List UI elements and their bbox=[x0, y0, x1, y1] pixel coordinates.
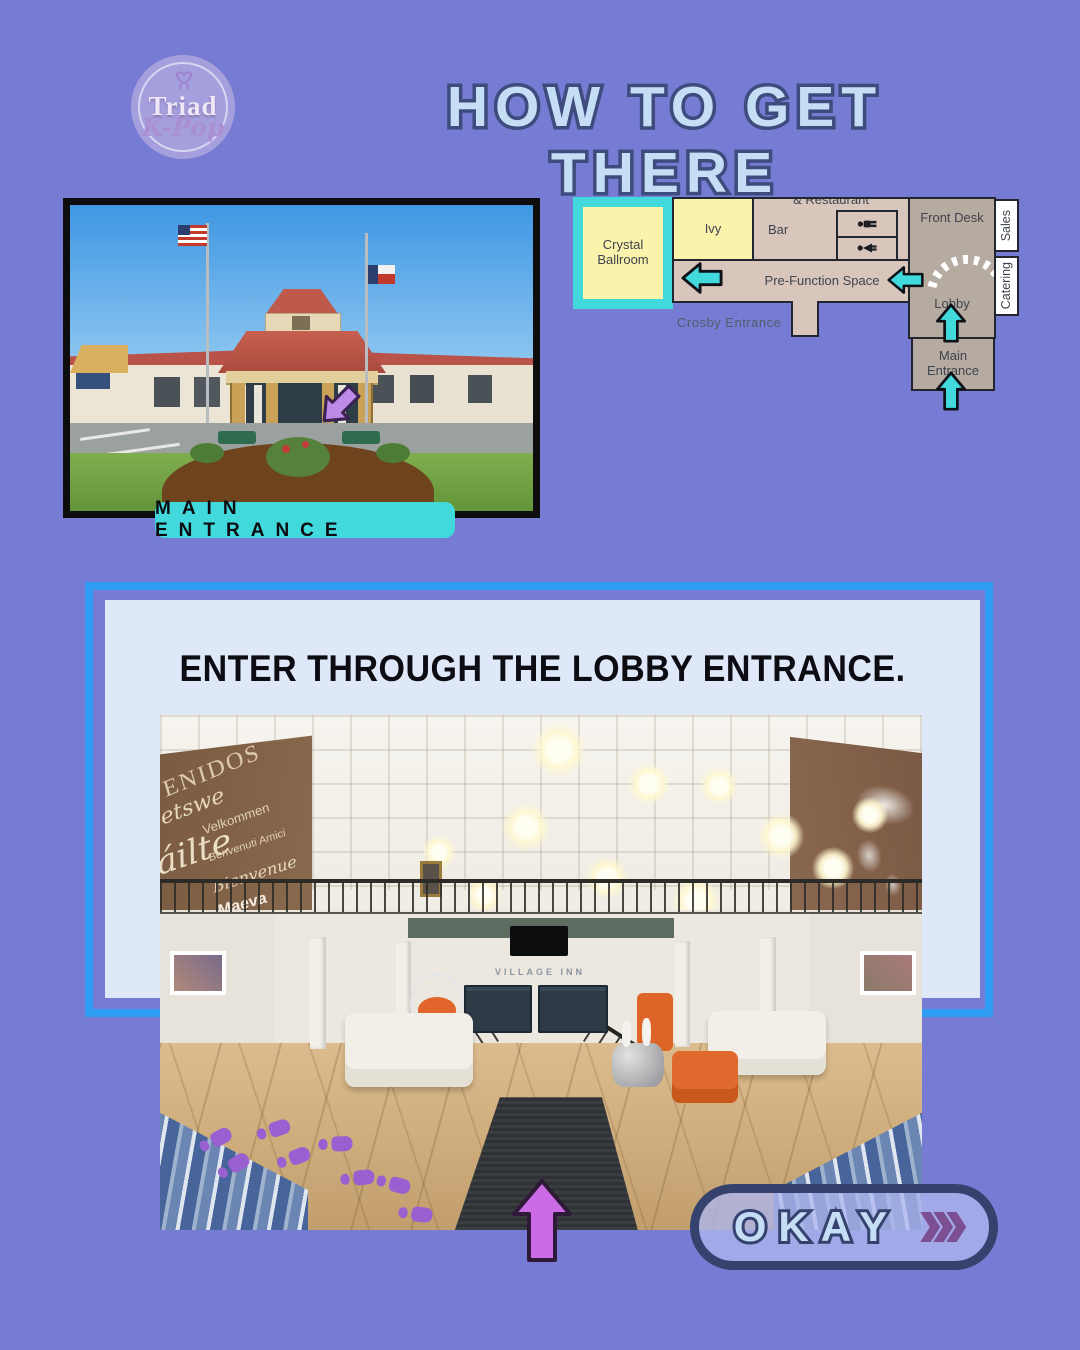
okay-button-label: OKAY bbox=[722, 1203, 900, 1251]
cupola-window bbox=[292, 316, 310, 330]
up-arrow-icon bbox=[934, 303, 968, 343]
bench bbox=[342, 431, 380, 444]
front-desk-sign: VILLAGE INN bbox=[450, 967, 630, 981]
room-label-restaurant: & Restaurant bbox=[754, 197, 908, 208]
room-label: Bar bbox=[768, 223, 788, 238]
floorplan: Crystal Ballroom Ivy & Restaurant Bar bbox=[573, 197, 1020, 425]
drum-side-table bbox=[612, 1043, 664, 1087]
lobby-photo: ENIDOS etswe Velkommen áilte Benvenuti A… bbox=[160, 715, 922, 1230]
left-wing-window bbox=[154, 377, 180, 407]
female-restroom-icon bbox=[857, 238, 877, 258]
triple-chevron-icon bbox=[927, 1212, 966, 1242]
floorplan-room-sales: Sales bbox=[994, 199, 1019, 252]
flowers bbox=[282, 445, 290, 453]
restrooms-box bbox=[836, 210, 898, 261]
main-entrance-label: MAIN ENTRANCE bbox=[155, 502, 455, 538]
picture-frame bbox=[170, 951, 226, 995]
room-label: Crystal Ballroom bbox=[583, 238, 663, 268]
flag-pole bbox=[206, 223, 209, 441]
room-label: Catering bbox=[999, 262, 1013, 309]
room-label: Pre-Function Space bbox=[703, 274, 880, 289]
bush bbox=[190, 443, 224, 463]
floorplan-room-bar: & Restaurant Bar bbox=[752, 197, 910, 261]
us-flag-canton bbox=[178, 225, 190, 235]
page-canvas: Triad K-Pop HOW TO GET THERE bbox=[0, 0, 1080, 1350]
left-arrow-icon bbox=[681, 261, 723, 295]
footprint-annotation bbox=[318, 1136, 353, 1152]
right-wing-window bbox=[468, 375, 492, 403]
triad-kpop-logo: Triad K-Pop bbox=[131, 55, 235, 159]
texas-flag-bar bbox=[368, 265, 378, 284]
crosby-entrance-stub bbox=[791, 301, 819, 337]
okay-button[interactable]: OKAY bbox=[690, 1184, 998, 1270]
floorplan-room-catering: Catering bbox=[994, 256, 1019, 316]
front-desk-panel bbox=[464, 985, 532, 1033]
texas-flag-red bbox=[378, 274, 395, 284]
front-desk-panel bbox=[538, 985, 608, 1033]
flower-bush bbox=[266, 437, 330, 477]
canopy-roof bbox=[218, 331, 386, 373]
floorplan-room-crystal-ballroom: Crystal Ballroom bbox=[573, 197, 673, 309]
room-label: Ivy bbox=[705, 222, 722, 237]
bottle-lamp bbox=[642, 1018, 651, 1046]
picture-frame bbox=[860, 951, 916, 995]
floorplan-room-ivy: Ivy bbox=[672, 197, 754, 261]
right-wing-window bbox=[410, 375, 434, 403]
crosby-entrance-label: Crosby Entrance bbox=[677, 315, 781, 330]
womens-restroom bbox=[838, 236, 896, 259]
column bbox=[310, 937, 326, 1049]
logo-subname: K-Pop bbox=[131, 113, 235, 142]
bench bbox=[218, 431, 256, 444]
texas-flag-white bbox=[378, 265, 395, 274]
male-restroom-icon bbox=[857, 214, 877, 234]
left-arrow-icon bbox=[887, 265, 924, 295]
lobby-direction-arrow-icon bbox=[510, 1178, 574, 1264]
room-label-front-desk: Front Desk bbox=[910, 211, 994, 226]
side-entry-sign bbox=[76, 373, 110, 389]
main-entrance-photo bbox=[63, 198, 540, 518]
room-label: Sales bbox=[999, 210, 1013, 241]
mens-restroom bbox=[838, 212, 896, 238]
up-arrow-icon bbox=[934, 371, 968, 411]
white-sofa bbox=[345, 1013, 473, 1087]
orange-armchair bbox=[672, 1051, 738, 1103]
instruction-text: ENTER THROUGH THE LOBBY ENTRANCE. bbox=[105, 648, 980, 690]
finger-heart-icon bbox=[173, 67, 195, 91]
page-title: HOW TO GET THERE bbox=[340, 74, 990, 206]
column bbox=[675, 941, 690, 1047]
bush bbox=[376, 443, 410, 463]
bottle-lamp bbox=[622, 1021, 631, 1047]
flowers bbox=[302, 441, 309, 448]
